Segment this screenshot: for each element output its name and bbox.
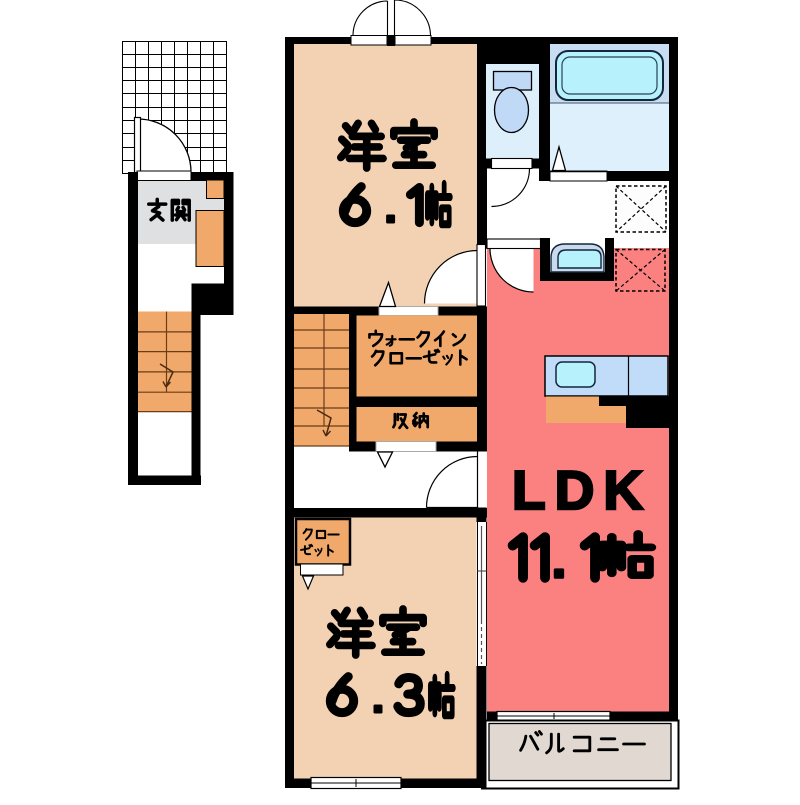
svg-text:LDK: LDK <box>512 459 652 521</box>
